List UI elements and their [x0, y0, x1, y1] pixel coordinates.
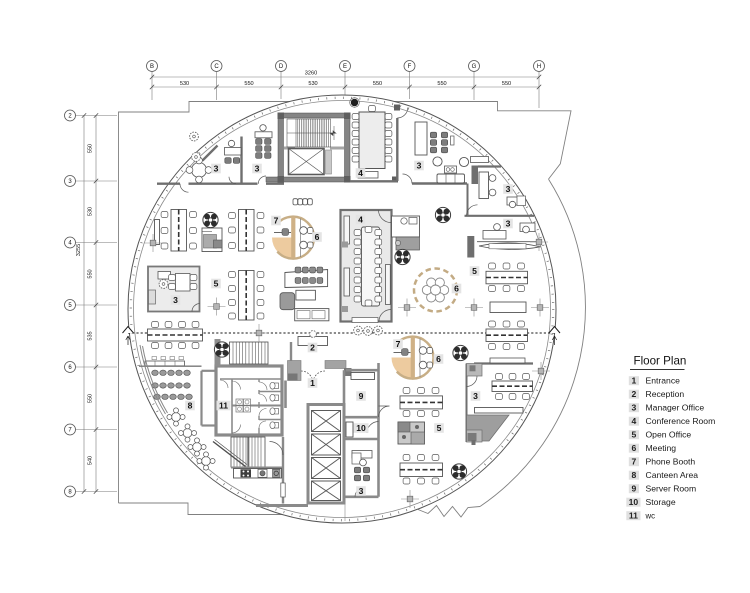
svg-text:550: 550	[88, 269, 94, 278]
svg-text:Canteen Area: Canteen Area	[646, 470, 699, 480]
svg-text:5: 5	[632, 430, 637, 440]
svg-text:8: 8	[188, 400, 193, 410]
svg-text:9: 9	[632, 484, 637, 494]
svg-text:3: 3	[359, 486, 364, 496]
svg-text:10: 10	[629, 497, 639, 507]
svg-text:7: 7	[274, 215, 279, 225]
svg-text:Entrance: Entrance	[646, 376, 681, 386]
svg-text:Server Room: Server Room	[646, 484, 697, 494]
svg-text:wc: wc	[645, 512, 656, 521]
svg-text:6: 6	[315, 232, 320, 242]
svg-text:3: 3	[506, 218, 511, 228]
svg-text:Manager Office: Manager Office	[646, 403, 705, 413]
svg-text:11: 11	[629, 511, 638, 521]
svg-text:5: 5	[472, 266, 477, 276]
svg-text:5: 5	[437, 423, 442, 433]
svg-text:3: 3	[173, 295, 178, 305]
svg-text:4: 4	[358, 214, 363, 224]
svg-text:Conference Room: Conference Room	[646, 416, 716, 426]
svg-text:550: 550	[437, 81, 446, 87]
svg-text:9: 9	[359, 391, 364, 401]
svg-text:Phone Booth: Phone Booth	[646, 457, 696, 467]
svg-text:Storage: Storage	[646, 497, 676, 507]
svg-text:Reception: Reception	[646, 389, 685, 399]
svg-text:Meeting: Meeting	[646, 443, 677, 453]
svg-text:C: C	[214, 64, 219, 70]
svg-text:7: 7	[632, 457, 637, 467]
svg-text:1: 1	[632, 376, 637, 386]
svg-text:4: 4	[632, 416, 637, 426]
svg-text:G: G	[472, 64, 477, 70]
svg-text:F: F	[408, 64, 412, 70]
svg-text:550: 550	[244, 81, 253, 87]
svg-text:10: 10	[356, 423, 366, 433]
svg-text:1: 1	[310, 378, 315, 388]
svg-text:3: 3	[255, 163, 260, 173]
svg-text:535: 535	[88, 331, 94, 340]
svg-text:H: H	[537, 64, 541, 70]
svg-text:3: 3	[473, 391, 478, 401]
svg-text:11: 11	[219, 400, 228, 410]
svg-text:3: 3	[417, 160, 422, 170]
svg-text:550: 550	[88, 394, 94, 403]
svg-text:3: 3	[506, 184, 511, 194]
svg-text:3260: 3260	[305, 71, 317, 77]
svg-text:6: 6	[436, 354, 441, 364]
svg-text:530: 530	[88, 207, 94, 216]
svg-text:3: 3	[632, 403, 637, 413]
svg-text:Open Office: Open Office	[646, 430, 692, 440]
svg-text:Floor Plan: Floor Plan	[634, 355, 687, 368]
svg-text:3255: 3255	[76, 244, 82, 256]
svg-text:2: 2	[632, 389, 637, 399]
svg-text:6: 6	[632, 443, 637, 453]
svg-text:B: B	[150, 64, 154, 70]
svg-text:3: 3	[214, 163, 219, 173]
svg-text:530: 530	[180, 81, 189, 87]
svg-text:550: 550	[88, 144, 94, 153]
svg-text:5: 5	[214, 278, 219, 288]
svg-text:8: 8	[632, 470, 637, 480]
svg-text:7: 7	[396, 339, 401, 349]
svg-text:E: E	[343, 64, 347, 70]
svg-text:540: 540	[88, 456, 94, 465]
svg-text:550: 550	[502, 81, 511, 87]
svg-text:530: 530	[308, 81, 317, 87]
svg-text:D: D	[279, 64, 284, 70]
svg-text:6: 6	[454, 283, 459, 293]
svg-text:550: 550	[373, 81, 382, 87]
svg-text:4: 4	[358, 168, 363, 178]
svg-text:2: 2	[310, 342, 315, 352]
